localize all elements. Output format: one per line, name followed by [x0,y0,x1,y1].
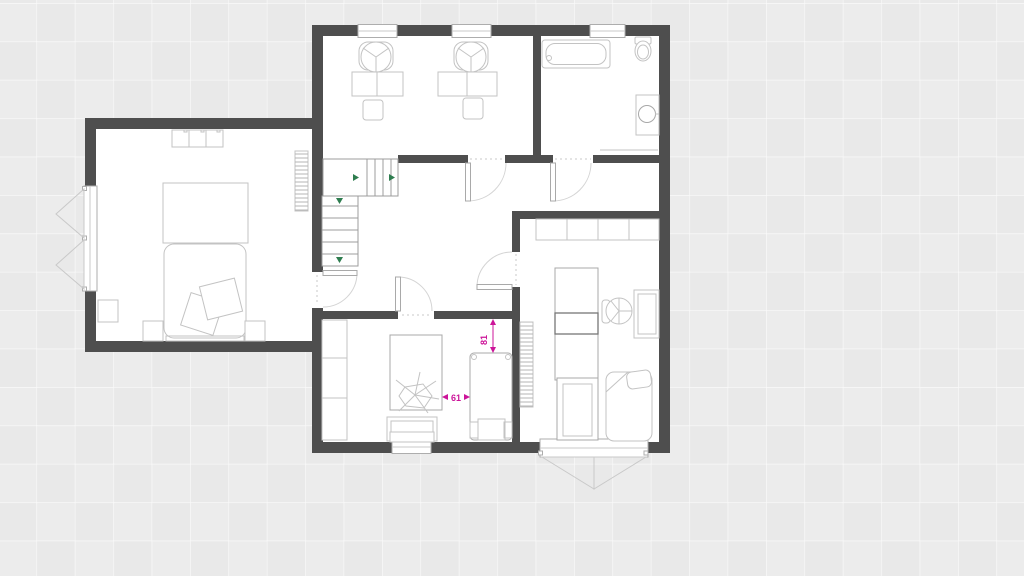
bed-pillow [626,369,652,389]
wall-middle-bedroom-top-a[interactable] [323,311,398,319]
window-office-2[interactable] [452,25,491,38]
wall-middle-bedroom-top-b[interactable] [434,311,512,319]
wall-right-room-top[interactable] [512,211,659,219]
corner-cabinet[interactable] [98,300,118,322]
wall-hall-top-c[interactable] [593,155,659,163]
desk-1[interactable] [352,72,403,96]
floorplan-canvas[interactable]: 81 61 [0,0,1024,576]
sideboard[interactable] [172,130,223,147]
crib[interactable] [470,353,512,440]
window-bathroom[interactable] [590,25,625,38]
nightstand-left[interactable] [143,321,163,341]
office-chair-2[interactable] [454,42,488,72]
radiator-right-room[interactable] [520,322,533,407]
wardrobe-right-room[interactable] [536,219,659,240]
nightstand-right[interactable] [245,321,265,341]
play-rug[interactable] [390,335,442,413]
radiator-left-bedroom[interactable] [295,151,308,211]
double-bed[interactable] [163,183,248,341]
desk-chair-right-room[interactable] [602,298,632,324]
desk-2[interactable] [438,72,497,96]
dresser-middle-bedroom[interactable] [387,417,437,442]
bathtub[interactable] [542,40,610,68]
floorplan-drawing[interactable]: 81 61 [0,0,1024,576]
wardrobe-middle-bedroom[interactable] [322,320,347,440]
bed-blanket [163,183,248,243]
wall-right-room-left-a[interactable] [512,219,520,252]
wall-right-room-left-b[interactable] [512,287,520,442]
wall-office-bathroom[interactable] [533,36,541,163]
drawer-unit-1[interactable] [363,100,383,120]
wall-hall-top-a[interactable] [398,155,468,163]
shelf-unit[interactable] [555,268,598,440]
office-chair-1[interactable] [359,42,393,72]
washbasin[interactable] [636,95,659,135]
stair-upper-flight[interactable] [323,159,398,196]
wall-hall-top-b[interactable] [505,155,553,163]
desk-right-room[interactable] [634,290,659,338]
dimension-label-61[interactable]: 61 [451,393,461,403]
dimension-label-81[interactable]: 81 [479,335,489,345]
single-bed[interactable] [606,369,652,441]
toilet[interactable] [635,37,651,61]
drawer-unit-2[interactable] [463,98,483,119]
window-office-1[interactable] [358,25,397,38]
